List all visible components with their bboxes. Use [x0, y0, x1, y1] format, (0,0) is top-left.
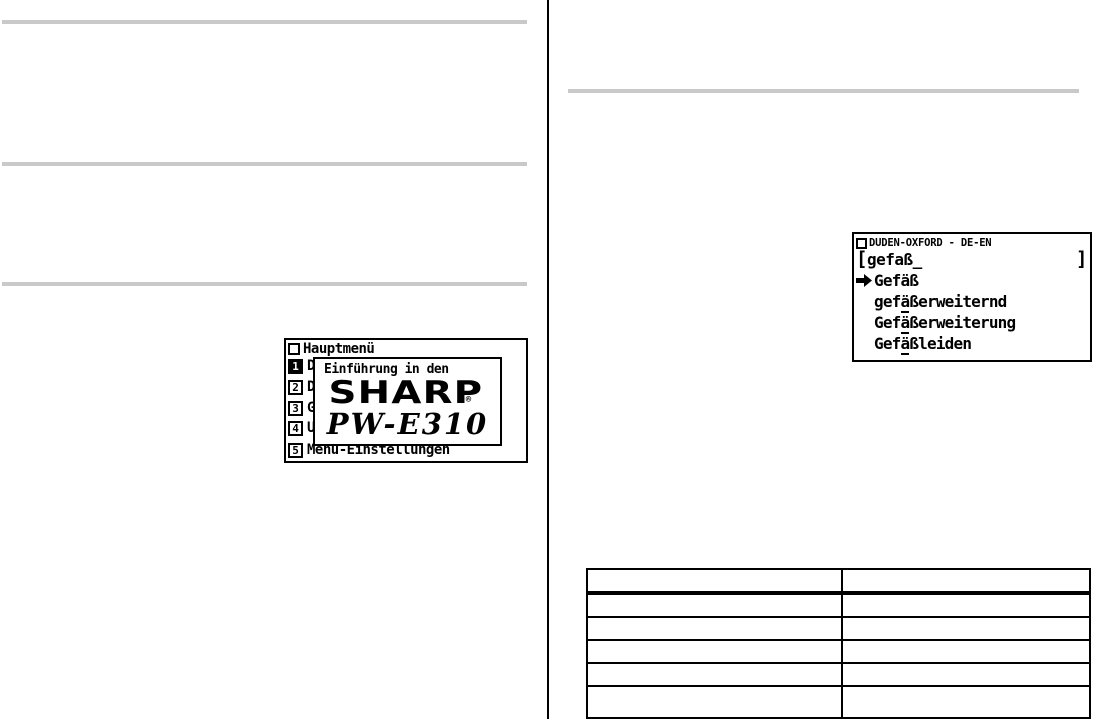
result-row: gefäßerweiternd: [856, 292, 1007, 310]
result-row-selected: Gefäß: [856, 271, 918, 289]
result-prefix: Gefäß: [874, 271, 918, 290]
table-cell: [587, 686, 842, 718]
table-cell: [587, 663, 842, 686]
manual-page: Hauptmenü 1 D 2 D 3 G 4 U 5 Menü-Einstel…: [0, 0, 1096, 723]
menu-item-number: 4: [288, 421, 303, 436]
brand-logo: SHARP®: [315, 378, 500, 409]
table-row: [587, 686, 1090, 718]
result-text: gefäßerweiternd: [874, 292, 1007, 311]
result-suffix: ßleiden: [909, 334, 971, 353]
result-text: Gefäßerweiterung: [874, 313, 1015, 332]
table-header-cell: [842, 569, 1090, 593]
result-suffix: ßerweiterung: [909, 313, 1015, 332]
menu-item-number: 1: [288, 359, 303, 374]
input-open-bracket: [: [856, 247, 867, 270]
screen-title: Hauptmenü: [303, 341, 374, 357]
lcd-screen-dictionary: DUDEN-OXFORD - DE-EN [ gefaß _ ] Gefäß g…: [852, 232, 1092, 362]
input-value: gefaß: [867, 250, 913, 269]
table-row: [587, 617, 1090, 640]
result-text: Gefäßleiden: [874, 334, 971, 353]
table-header-row: [587, 569, 1090, 593]
table-row: [587, 640, 1090, 663]
lcd-screen-main-menu: Hauptmenü 1 D 2 D 3 G 4 U 5 Menü-Einstel…: [284, 338, 528, 463]
section-rule: [568, 89, 1079, 93]
sharp-logo-text: SHARP: [328, 378, 483, 409]
table-cell: [842, 640, 1090, 663]
table-cell: [587, 593, 842, 617]
input-close-bracket: ]: [1076, 247, 1087, 270]
title-square-icon: [288, 343, 300, 355]
result-prefix: Gef: [874, 334, 901, 353]
menu-item-number: 2: [288, 380, 303, 395]
startup-popup: Einführung in den SHARP® PW-E310: [313, 357, 502, 446]
table-cell: [842, 686, 1090, 718]
table-cell: [842, 663, 1090, 686]
menu-item-3: 3 G: [288, 400, 315, 416]
table-cell: [842, 617, 1090, 640]
result-prefix: Gef: [874, 313, 901, 332]
table-row: [587, 593, 1090, 617]
table-cell: [842, 593, 1090, 617]
section-rule: [2, 282, 527, 286]
input-cursor: _: [913, 250, 922, 269]
column-divider: [547, 0, 549, 719]
result-row: Gefäßleiden: [856, 334, 971, 352]
result-row: Gefäßerweiterung: [856, 313, 1015, 331]
menu-item-number: 3: [288, 401, 303, 416]
table-cell: [587, 640, 842, 663]
table-row: [587, 663, 1090, 686]
search-input: [ gefaß _ ]: [856, 248, 1087, 270]
result-prefix: gef: [874, 292, 901, 311]
reference-table: [586, 568, 1091, 719]
result-text: Gefäß: [874, 271, 918, 290]
screen-header: Hauptmenü: [288, 341, 374, 357]
menu-item-2: 2 D: [288, 379, 315, 395]
result-suffix: ßerweiternd: [909, 292, 1006, 311]
section-rule: [2, 20, 527, 24]
model-name: PW-E310: [315, 410, 500, 439]
table-header-cell: [587, 569, 842, 593]
pointer-arrow-icon: [856, 274, 874, 287]
menu-item-4: 4 U: [288, 420, 315, 436]
menu-item-number: 5: [288, 443, 303, 458]
section-rule: [2, 162, 527, 166]
table-cell: [587, 617, 842, 640]
menu-item-1: 1 D: [288, 358, 315, 374]
